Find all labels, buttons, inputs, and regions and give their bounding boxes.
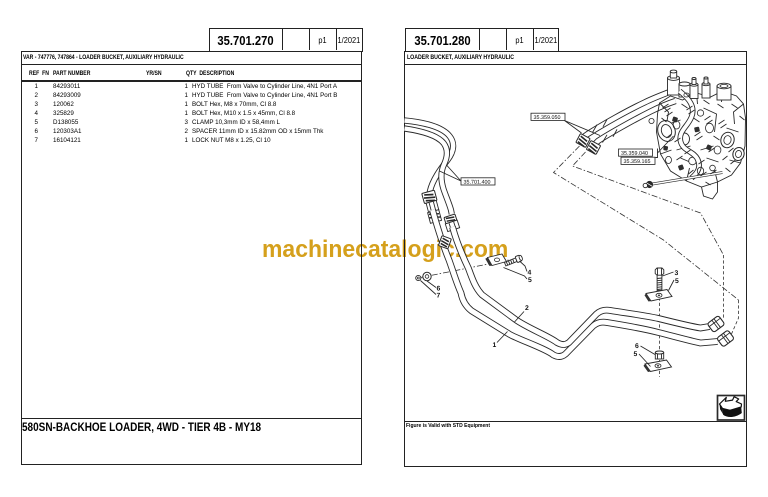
svg-text:4: 4 (527, 269, 531, 276)
svg-text:5: 5 (633, 351, 637, 358)
svg-text:1: 1 (492, 342, 496, 349)
svg-text:35.701.400: 35.701.400 (463, 180, 490, 186)
svg-text:5: 5 (527, 277, 531, 284)
svg-text:6: 6 (634, 343, 638, 350)
svg-text:3: 3 (674, 270, 678, 277)
svg-text:35.359.040: 35.359.040 (620, 151, 647, 157)
svg-text:2: 2 (524, 305, 528, 312)
svg-text:5: 5 (674, 278, 678, 285)
svg-text:6: 6 (436, 285, 440, 292)
svg-text:35.359.165: 35.359.165 (623, 159, 650, 165)
svg-text:7: 7 (436, 292, 440, 299)
